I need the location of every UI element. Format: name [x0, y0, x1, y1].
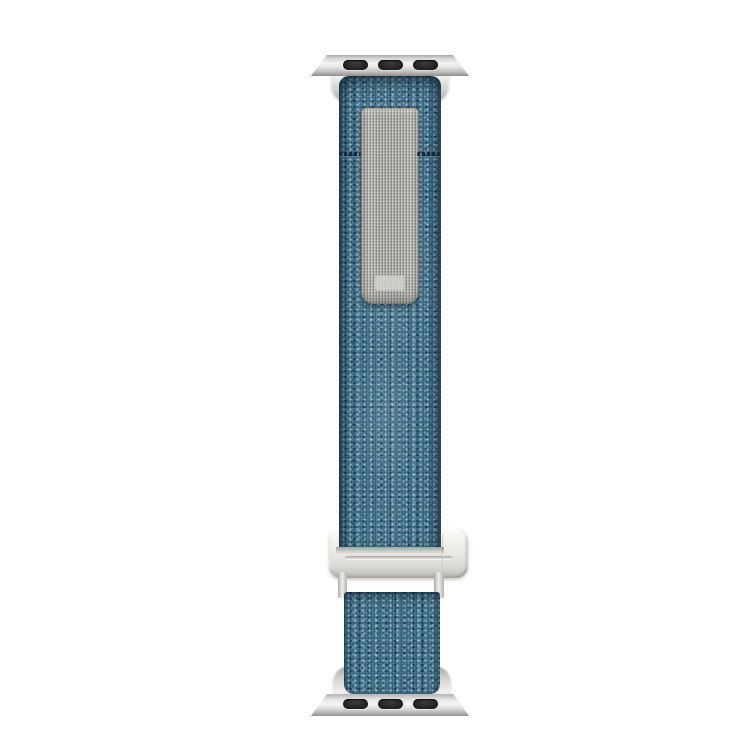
adapter-slot: [413, 60, 438, 70]
adapter-slot: [343, 60, 368, 70]
adapter-slot: [378, 699, 403, 709]
end-loop-fabric: [344, 592, 440, 694]
hook-loop-pull-tab: [361, 108, 419, 304]
tab-label-patch: [374, 275, 405, 291]
buckle-crease-line: [345, 556, 452, 560]
product-photo-watch-band: [0, 0, 750, 750]
bottom-lug-adapter: [311, 694, 469, 716]
top-lug-adapter: [311, 55, 469, 76]
adapter-slot: [343, 699, 368, 709]
adapter-slot: [378, 60, 403, 70]
stitch-line-right: [417, 152, 441, 156]
band-shadow-on-buckle: [336, 547, 444, 554]
adapter-slot: [413, 699, 438, 709]
stitch-line-left: [339, 152, 361, 156]
